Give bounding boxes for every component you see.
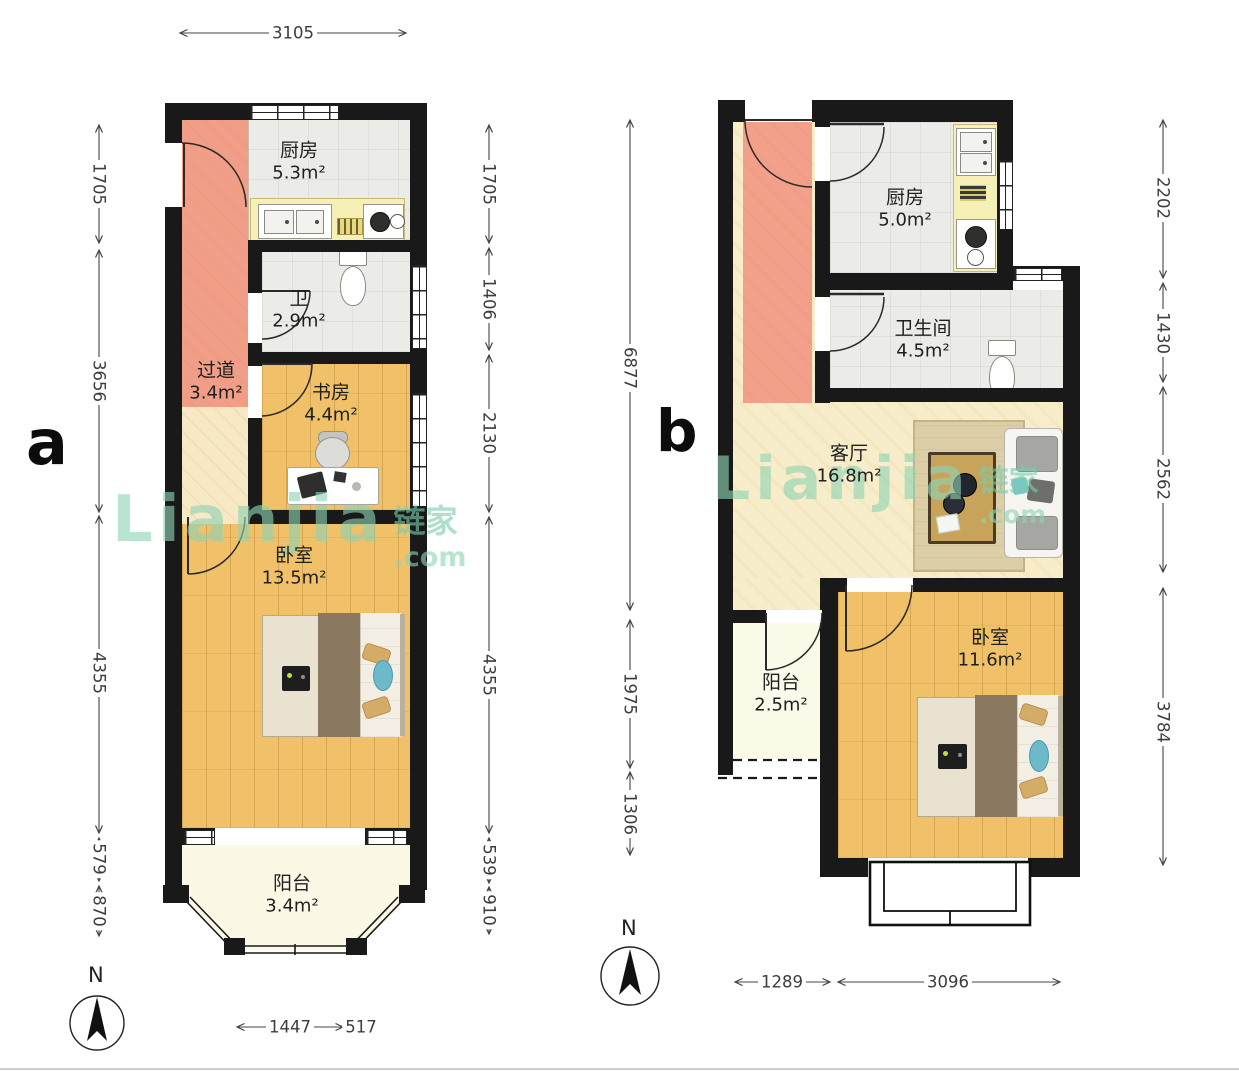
plan-b-bath-door-opening (815, 297, 830, 351)
room-label-kitchen-b: 厨房5.0m² (878, 186, 931, 231)
dim-a-left-4: 870 (90, 892, 109, 930)
dim-a-top: 3105 (269, 24, 317, 43)
dim-b-right-3: 3784 (1154, 698, 1173, 746)
coffee-table (928, 452, 996, 544)
room-label-bath-a: 卫2.9m² (272, 287, 325, 332)
plan-b-living-floor-left (733, 578, 820, 613)
toilet-a (337, 250, 367, 308)
dim-b-right-1: 1430 (1154, 309, 1173, 357)
plan-b-wall-left (718, 122, 733, 775)
room-label-kitchen-a: 厨房5.3m² (272, 139, 325, 184)
kitchen-stove (363, 204, 404, 239)
dim-b-right-2: 2562 (1154, 455, 1173, 503)
dim-b-right-0: 2202 (1154, 174, 1173, 222)
study-chair (315, 431, 349, 469)
dim-a-right-1: 1406 (480, 275, 499, 323)
plan-a-study-door-opening (248, 366, 262, 418)
bath-window (412, 265, 427, 349)
sofa (1002, 428, 1063, 556)
room-label-bedroom-b: 卧室11.6m² (958, 626, 1023, 671)
plan-b-wall-bath-bottom (825, 388, 1080, 402)
plan-b-kitchen-door-opening (815, 127, 830, 181)
plan-a-wall-study-bedroom (248, 510, 427, 524)
plan-a-entry-opening (165, 143, 182, 207)
dim-a-left-0: 1705 (90, 160, 109, 208)
bed-a (262, 613, 405, 737)
stove-b-burner-icon (965, 226, 987, 248)
dim-b-left-0: 6877 (621, 344, 640, 392)
plan-b-bay-opening (868, 858, 1028, 877)
kitchen-counter (250, 198, 405, 242)
dim-a-left-2: 4355 (90, 649, 109, 697)
stove-dial-icon (390, 214, 405, 229)
compass-a (70, 996, 124, 1050)
kitchen-small-appliance (337, 218, 363, 235)
compass-a-north-label: N (88, 963, 104, 987)
bedroom-a-window-right (366, 830, 407, 845)
stove-b-dial-icon (967, 249, 984, 266)
dim-a-right-5: 910 (480, 891, 499, 929)
round-pillow-icon (373, 660, 393, 691)
compass-b (601, 947, 659, 1005)
plan-b-wall-kitchen-bath (815, 273, 1013, 290)
laptop-icon (297, 471, 328, 499)
dim-a-right-3: 4355 (480, 651, 499, 699)
stove-burner-icon (370, 212, 390, 232)
kitchen-b-sink (956, 128, 996, 176)
kitchen-b-stove (956, 219, 996, 269)
dim-a-right-4: 539 (480, 841, 499, 879)
plan-a-wall-kitchen-bath (248, 240, 410, 252)
plan-b-wall-right (1063, 281, 1080, 877)
room-label-balcony-b: 阳台2.5m² (754, 671, 807, 716)
dim-b-left-2: 1306 (621, 790, 640, 838)
study-desk (287, 467, 379, 505)
dim-a-left-3: 579 (90, 840, 109, 878)
tv-b-icon (938, 744, 967, 769)
dim-a-bottom-1: 517 (342, 1018, 380, 1037)
plan-b-entry-opening (745, 100, 812, 122)
bed-b (917, 695, 1063, 817)
dim-b-bottom-1: 3096 (924, 973, 972, 992)
dim-a-bottom-0: 1447 (266, 1018, 314, 1037)
kitchen-window (250, 105, 339, 120)
room-label-bedroom-a: 卧室13.5m² (262, 544, 327, 589)
plan-a-wall-bath-study (248, 352, 410, 364)
floorplan-canvas: Lianjia 链家 .com Lianjia 链家 .com a b 厨房5.… (0, 0, 1239, 1073)
room-label-living-b: 客厅16.8m² (817, 442, 882, 487)
plan-b-hall-red-highlight (743, 114, 812, 403)
dim-b-left-1: 1975 (621, 670, 640, 718)
bedroom-a-window-left (184, 830, 215, 845)
dim-b-bottom-0: 1289 (758, 973, 806, 992)
tv-icon (282, 666, 310, 691)
balcony-b-dashed-edge (718, 758, 831, 780)
bath-b-window (1014, 268, 1062, 281)
kitchen-sink (258, 204, 332, 239)
room-label-bath-b: 卫生间4.5m² (894, 317, 951, 362)
kitchen-b-small-appliance (960, 185, 986, 201)
round-pillow-b-icon (1029, 740, 1049, 772)
kitchen-b-counter (953, 124, 999, 272)
dim-a-left-1: 3656 (90, 357, 109, 405)
bottom-divider (0, 1068, 1239, 1070)
plan-a-bath-door-opening (248, 293, 262, 343)
dim-a-right-0: 1705 (480, 160, 499, 208)
plan-b-balcony-door-opening (766, 610, 822, 623)
room-label-study-a: 书房4.4m² (304, 381, 357, 426)
plan-a-letter: a (26, 412, 68, 474)
compass-b-north-label: N (621, 916, 637, 940)
kitchen-b-window (999, 160, 1013, 230)
plan-b-bedroom-door-opening (847, 578, 913, 592)
room-label-hall-a: 过道3.4m² (189, 359, 242, 404)
plan-b-letter: b (656, 402, 698, 460)
dim-a-right-2: 2130 (480, 409, 499, 457)
plan-a-wall-left (165, 120, 182, 890)
study-window (412, 393, 427, 507)
plan-a-kitchen-hall-divider (248, 120, 249, 240)
room-label-balcony-a: 阳台3.4m² (265, 872, 318, 917)
